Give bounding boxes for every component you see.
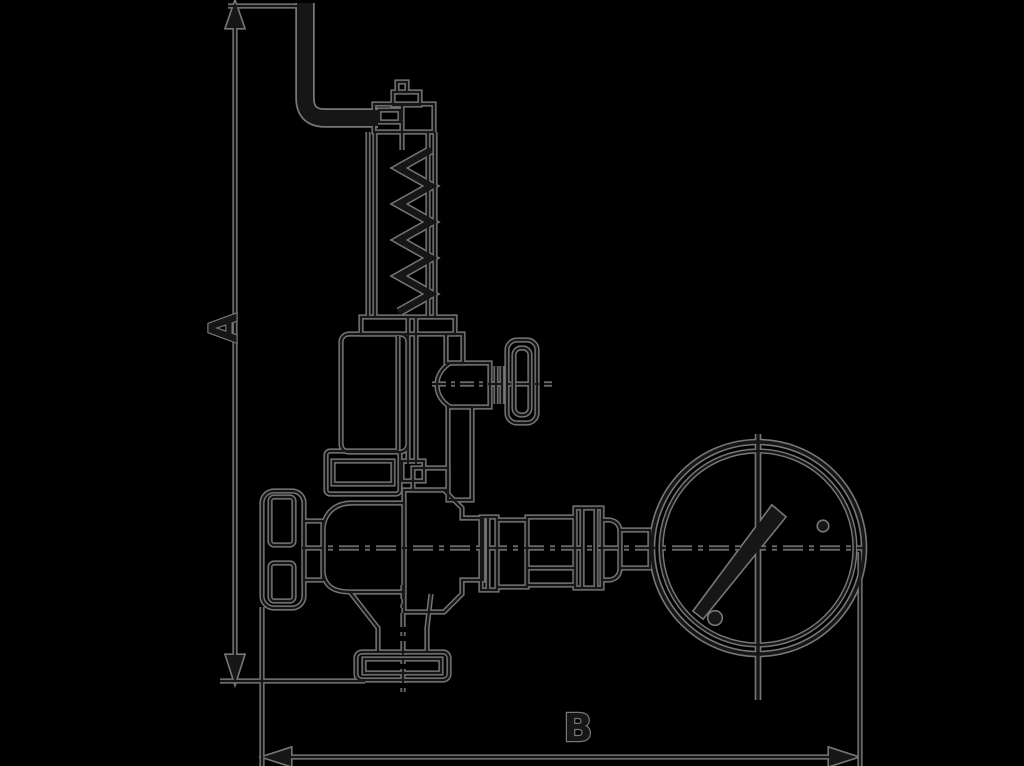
dimension-b-label: B [564, 706, 593, 750]
technical-drawing-canvas: A B [0, 0, 1024, 766]
dimension-a-label: A [202, 313, 246, 343]
ink-lever [305, 3, 378, 118]
valve-gauge-drawing: A B [0, 0, 1024, 766]
halo-lever [305, 3, 378, 118]
ink-med [652, 434, 864, 700]
